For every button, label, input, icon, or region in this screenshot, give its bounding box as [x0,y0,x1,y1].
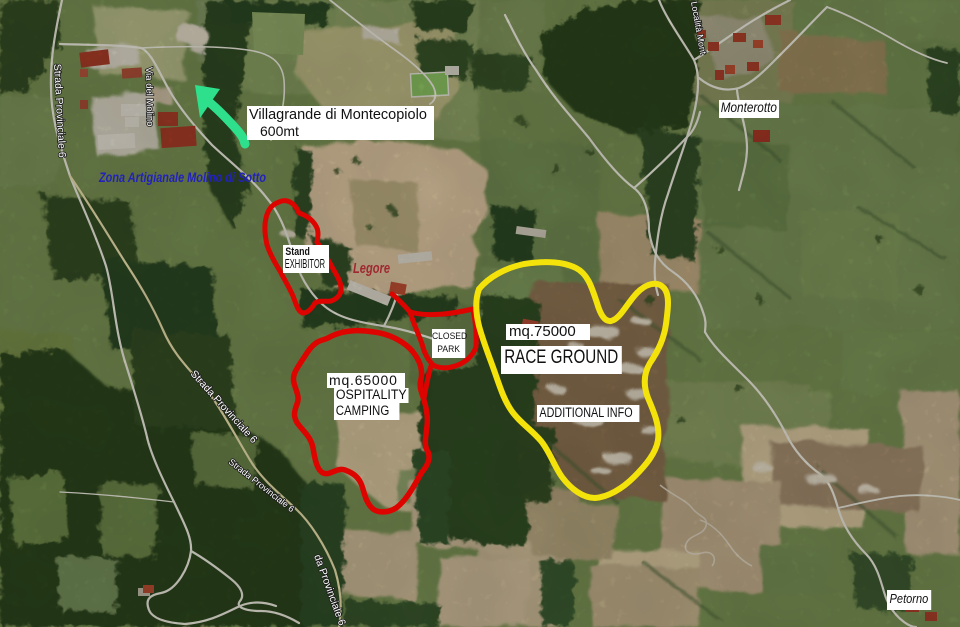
svg-text:Strada Provinciale 6: Strada Provinciale 6 [188,368,260,446]
svg-text:Strada Provinciale 6: Strada Provinciale 6 [51,64,68,159]
svg-text:Via del Molino: Via del Molino [143,67,155,127]
svg-text:da Provinciale 6: da Provinciale 6 [311,553,348,627]
svg-text:Strada Provinciale 6: Strada Provinciale 6 [227,457,297,514]
svg-text:Località Mont: Località Mont [689,1,708,56]
